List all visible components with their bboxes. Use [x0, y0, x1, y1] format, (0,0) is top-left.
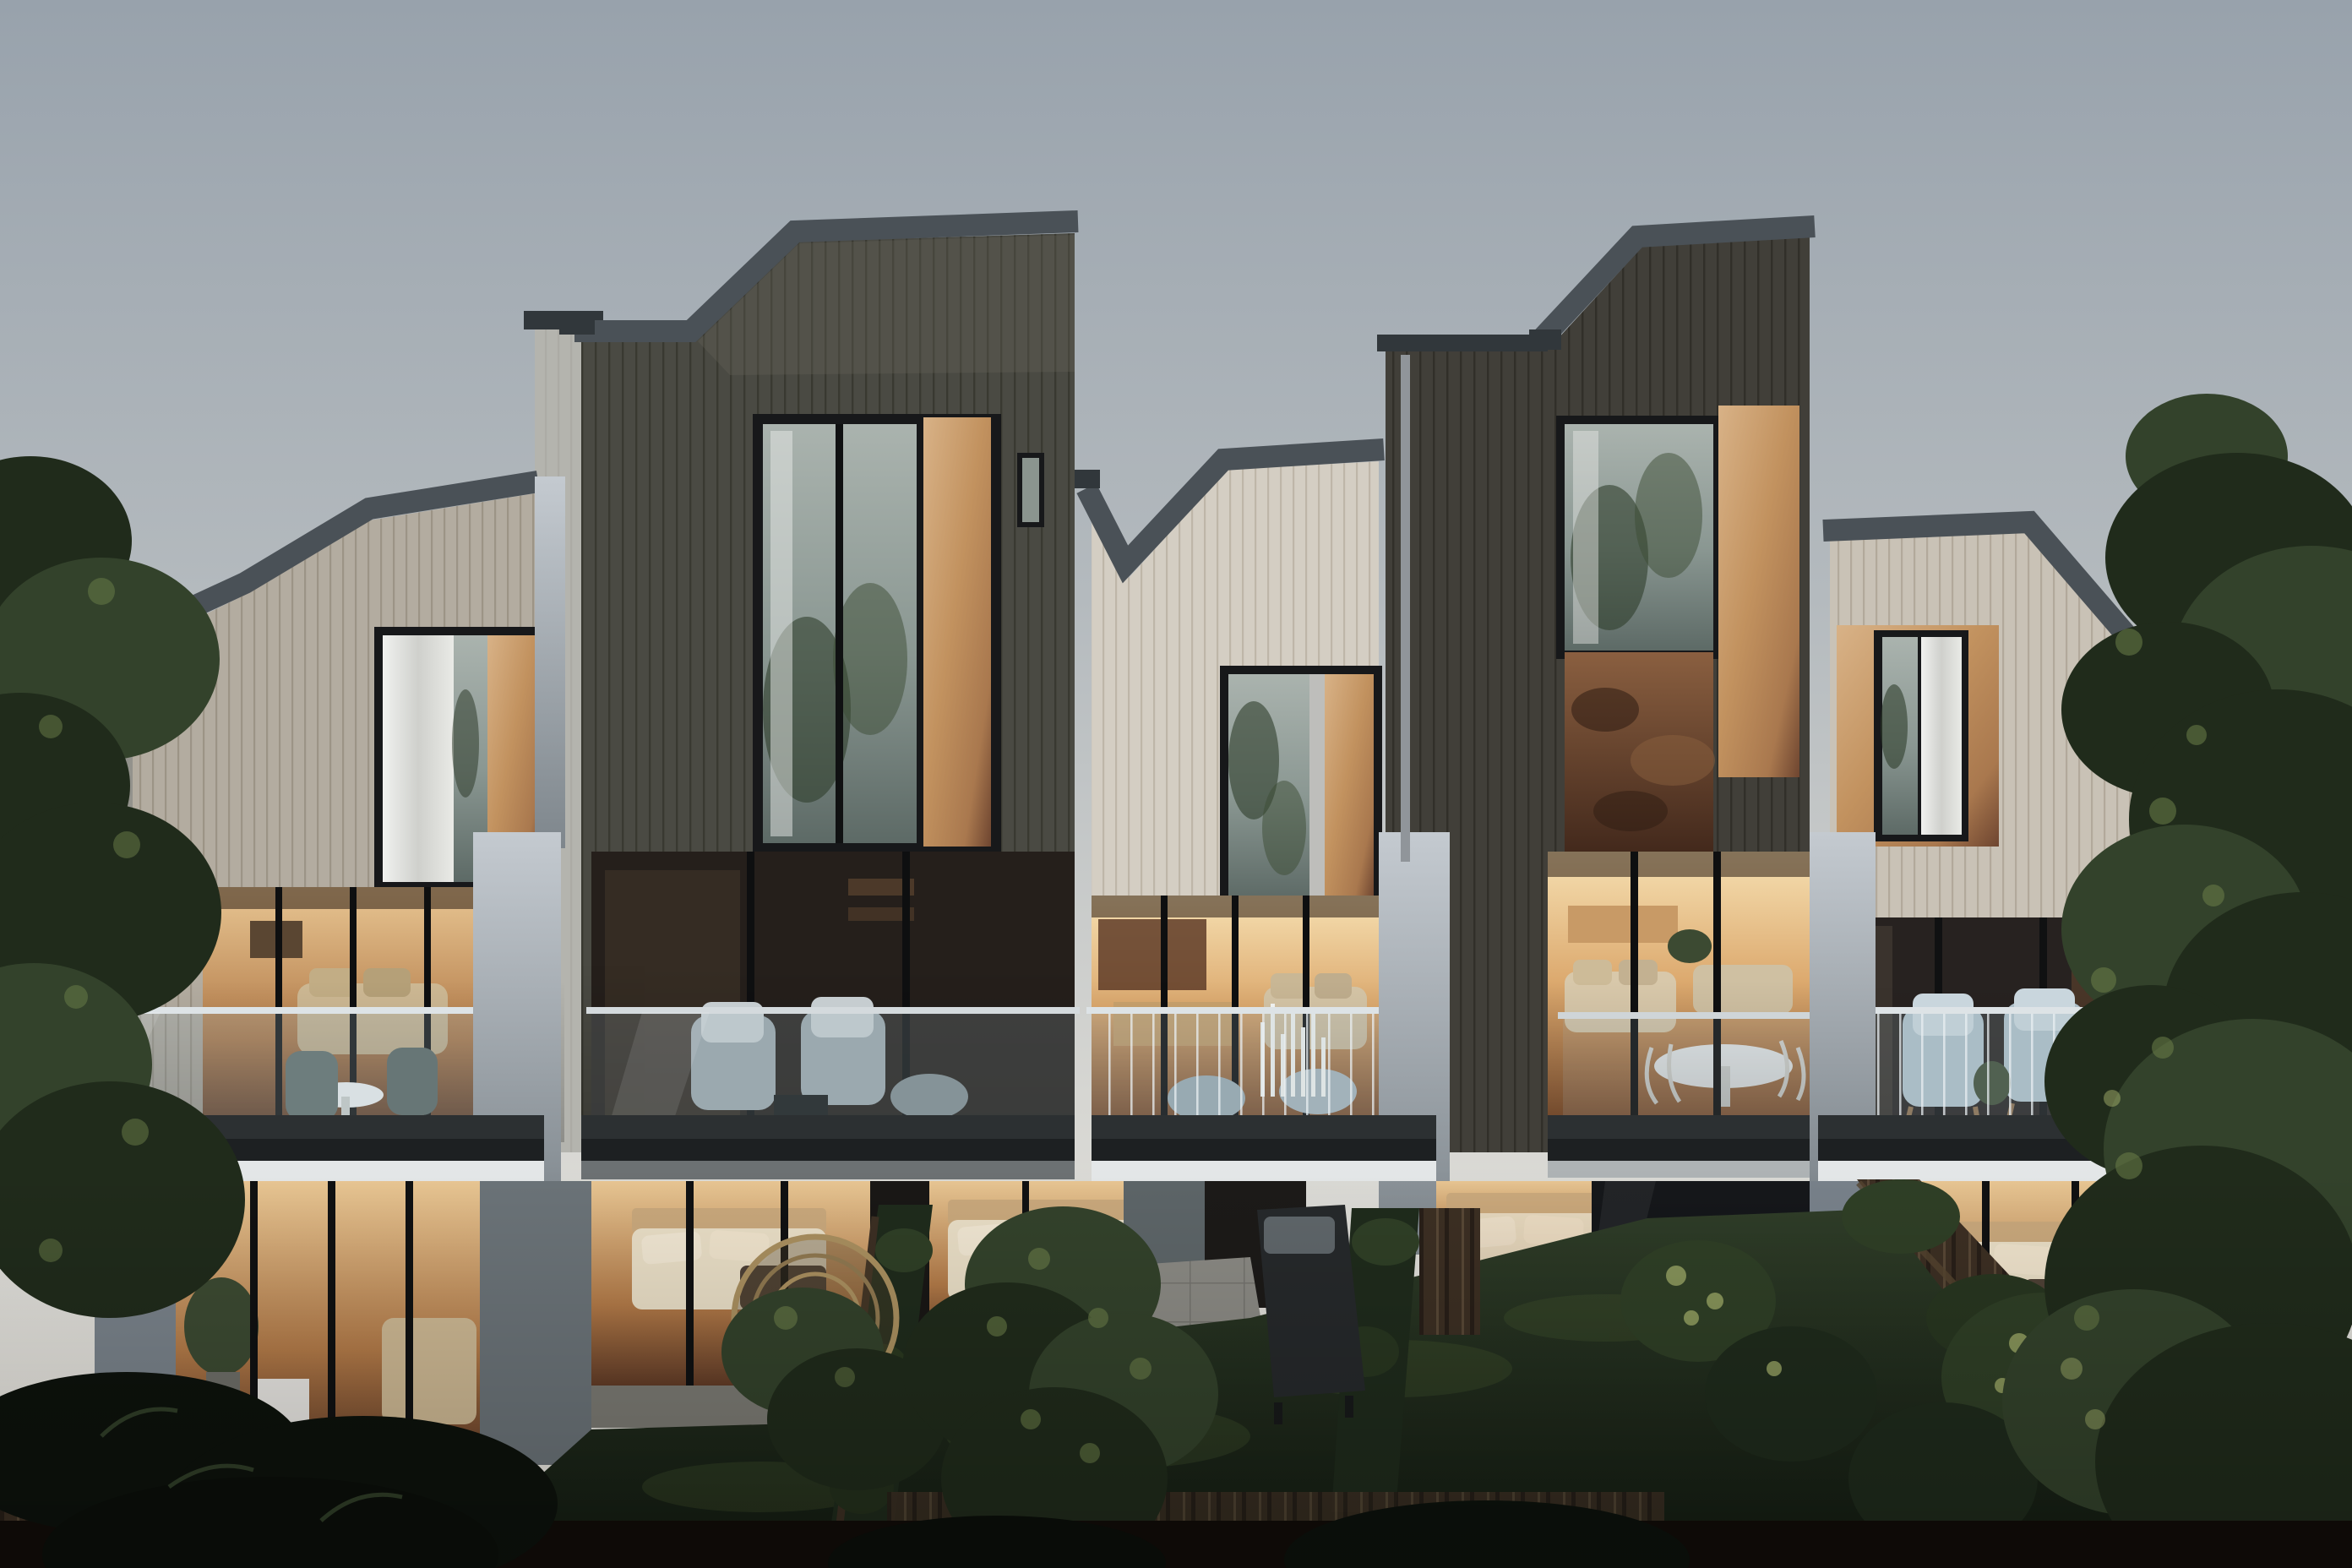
unit-3-gutter-cap — [1075, 470, 1100, 488]
mid-volume-cap — [1377, 335, 1554, 351]
unit-3-window-bay — [1220, 666, 1382, 907]
downpipe-unit-3-4 — [1401, 355, 1410, 862]
dusk-vignette — [0, 1166, 2352, 1568]
unit-3-kitchen-cabinets — [1098, 919, 1206, 990]
unit-5-window-bay — [1837, 625, 1999, 847]
render-canvas — [0, 0, 2352, 1568]
unit-4-plant — [1668, 929, 1712, 963]
unit-4-kitchen-island — [1568, 906, 1678, 943]
unit-2-copper-panel — [923, 417, 991, 847]
unit-2-window-bay — [753, 414, 1001, 853]
townhouse-dusk-render — [0, 0, 2352, 1568]
unit-1-edge-fin — [535, 476, 565, 848]
unit-4-copper-panel — [1718, 406, 1799, 777]
unit-2-side-window — [1017, 453, 1044, 527]
unit-3-copper-panel — [1325, 674, 1374, 899]
unit-4-gutter-cap — [1529, 329, 1561, 350]
unit-2-gutter-cap — [559, 313, 595, 335]
